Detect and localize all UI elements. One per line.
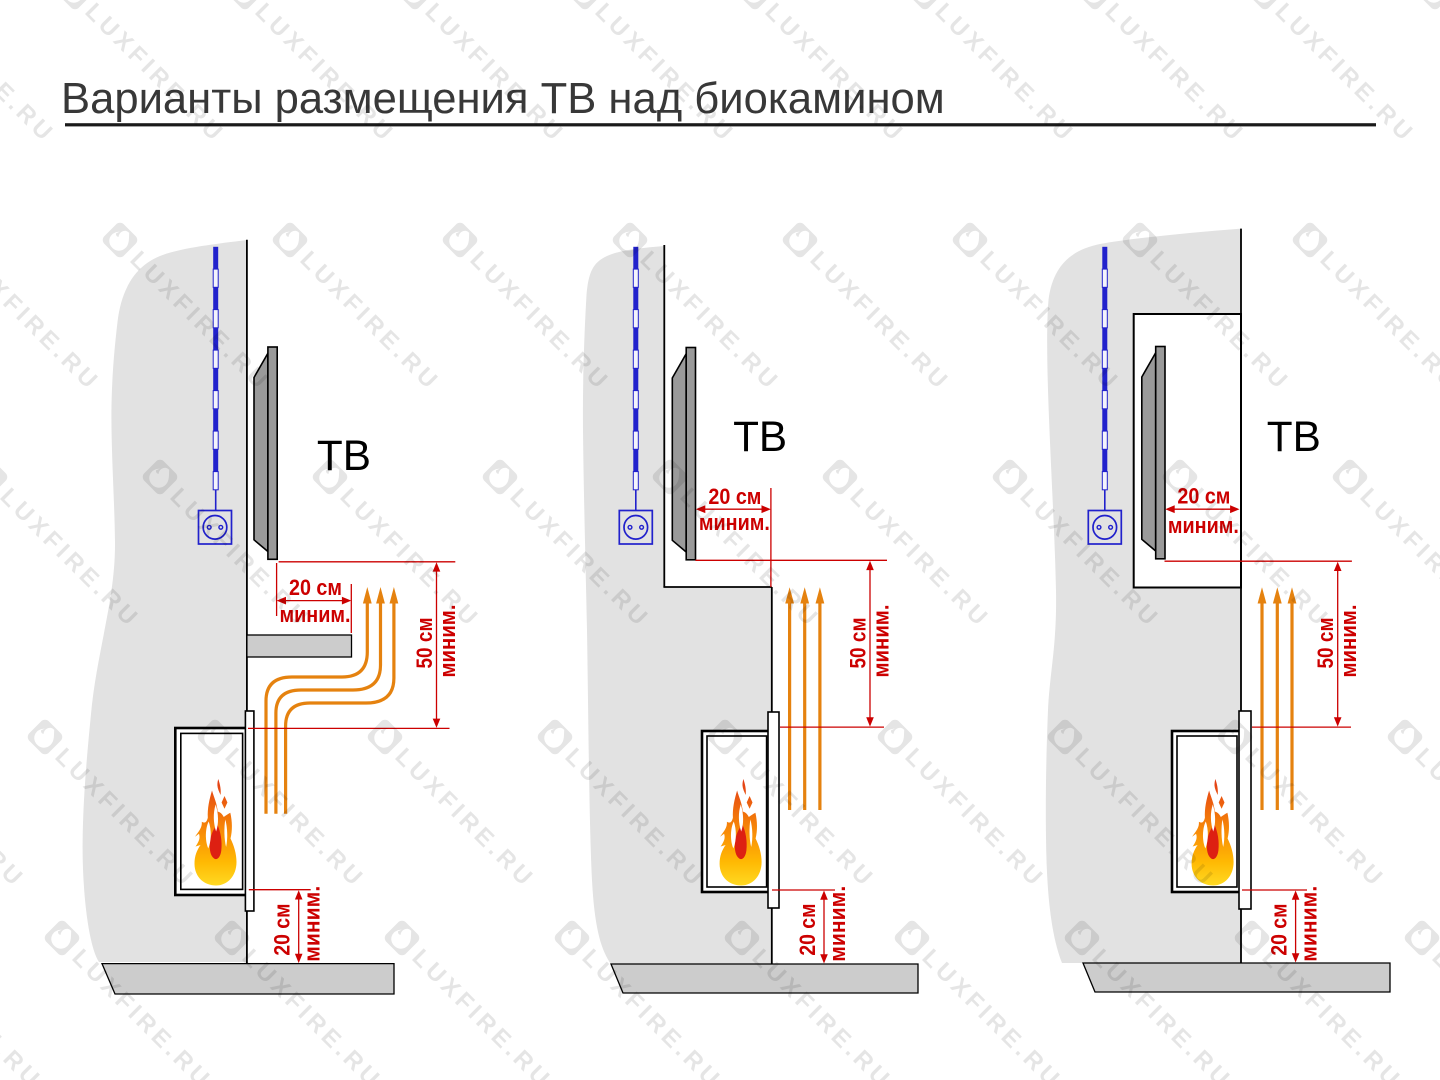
svg-text:50 см: 50 см xyxy=(846,618,871,669)
svg-text:20 см: 20 см xyxy=(270,904,295,956)
svg-text:ТВ: ТВ xyxy=(1267,413,1321,460)
svg-text:ТВ: ТВ xyxy=(733,413,787,460)
svg-text:20 см: 20 см xyxy=(795,904,820,956)
svg-text:миним.: миним. xyxy=(1336,605,1361,678)
svg-text:миним.: миним. xyxy=(869,605,894,678)
svg-text:50 см: 50 см xyxy=(412,618,437,669)
svg-text:миним.: миним. xyxy=(825,886,850,962)
svg-text:миним.: миним. xyxy=(300,886,325,962)
svg-text:миним.: миним. xyxy=(1297,886,1322,962)
